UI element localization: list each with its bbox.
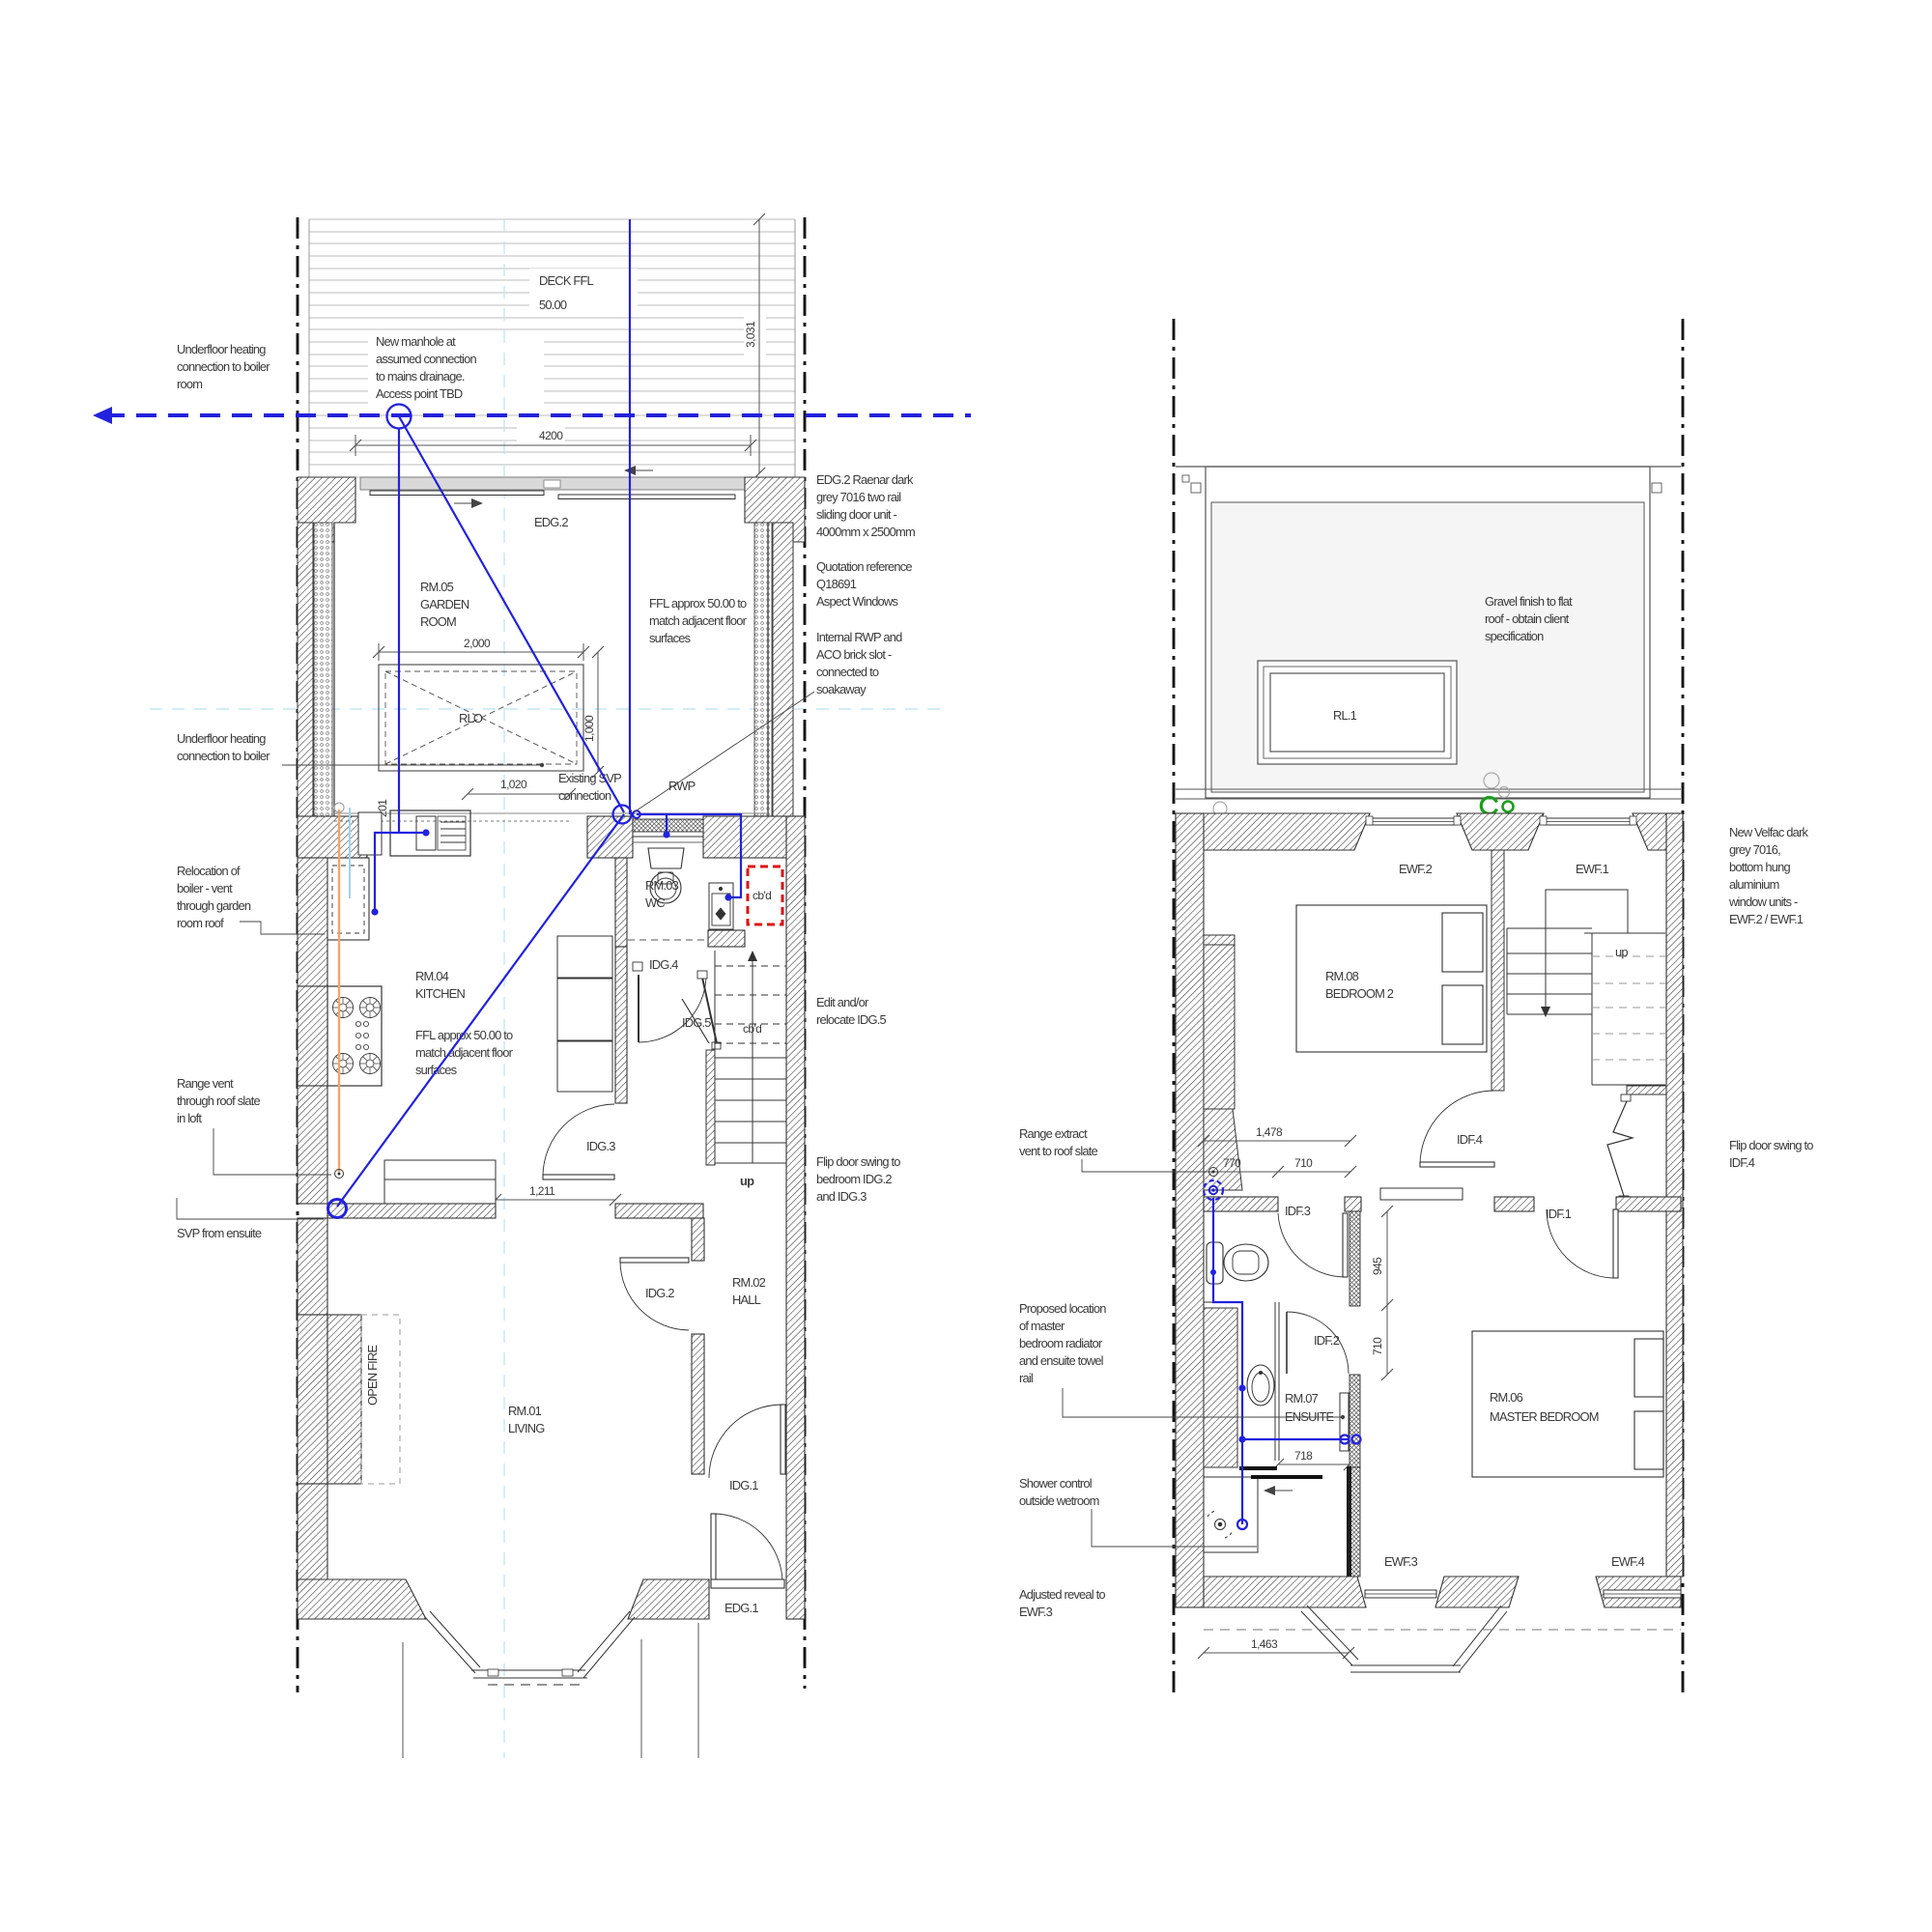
svg-text:RM.07: RM.07 bbox=[1285, 1391, 1319, 1406]
svg-text:IDG.1: IDG.1 bbox=[729, 1478, 758, 1492]
svg-text:RLO: RLO bbox=[459, 711, 483, 725]
svg-text:EWF.3: EWF.3 bbox=[1384, 1554, 1418, 1569]
svg-text:Shower control: Shower control bbox=[1019, 1476, 1092, 1491]
svg-text:and ensuite towel: and ensuite towel bbox=[1019, 1353, 1103, 1368]
svg-text:cb'd: cb'd bbox=[753, 889, 771, 902]
svg-text:bedroom IDG.2: bedroom IDG.2 bbox=[816, 1172, 892, 1186]
svg-text:EDG.1: EDG.1 bbox=[724, 1601, 758, 1615]
svg-text:RM.01: RM.01 bbox=[508, 1404, 542, 1418]
svg-text:IDF.4: IDF.4 bbox=[1457, 1132, 1483, 1147]
svg-text:New manhole at: New manhole at bbox=[376, 334, 456, 349]
svg-text:SVP from ensuite: SVP from ensuite bbox=[177, 1226, 262, 1240]
svg-text:to mains drainage.: to mains drainage. bbox=[376, 369, 465, 384]
svg-text:MASTER BEDROOM: MASTER BEDROOM bbox=[1490, 1409, 1599, 1424]
svg-text:in loft: in loft bbox=[177, 1111, 202, 1125]
svg-text:ACO brick slot -: ACO brick slot - bbox=[816, 647, 892, 662]
svg-text:RM.02: RM.02 bbox=[732, 1275, 766, 1290]
svg-text:Existing SVP: Existing SVP bbox=[558, 771, 621, 785]
svg-text:Adjusted reveal to: Adjusted reveal to bbox=[1019, 1587, 1105, 1602]
svg-text:Aspect Windows: Aspect Windows bbox=[816, 594, 897, 609]
svg-text:RM.06: RM.06 bbox=[1490, 1390, 1523, 1405]
svg-text:EDG.2 Raenar dark: EDG.2 Raenar dark bbox=[816, 472, 914, 487]
svg-text:ENSUITE: ENSUITE bbox=[1285, 1409, 1334, 1424]
svg-text:LIVING: LIVING bbox=[508, 1421, 545, 1435]
svg-text:through garden: through garden bbox=[177, 898, 251, 913]
svg-text:surfaces: surfaces bbox=[649, 631, 691, 645]
svg-text:RM.04: RM.04 bbox=[415, 969, 449, 983]
svg-text:bottom hung: bottom hung bbox=[1729, 860, 1790, 874]
svg-text:of master: of master bbox=[1019, 1319, 1065, 1333]
svg-text:Range extract: Range extract bbox=[1019, 1126, 1088, 1141]
svg-text:GARDEN: GARDEN bbox=[420, 597, 469, 611]
svg-text:up: up bbox=[740, 1174, 754, 1188]
svg-text:710: 710 bbox=[1294, 1156, 1313, 1170]
svg-text:connection: connection bbox=[558, 788, 611, 803]
svg-text:aluminium: aluminium bbox=[1729, 877, 1779, 892]
svg-text:RWP: RWP bbox=[668, 779, 696, 793]
svg-text:up: up bbox=[1615, 945, 1628, 959]
svg-text:Underfloor heating: Underfloor heating bbox=[177, 731, 266, 746]
svg-text:room roof: room roof bbox=[177, 916, 224, 930]
svg-text:WC: WC bbox=[645, 895, 665, 910]
svg-text:FFL approx 50.00 to: FFL approx 50.00 to bbox=[415, 1028, 513, 1042]
svg-text:770: 770 bbox=[1223, 1156, 1241, 1170]
svg-text:Quotation reference: Quotation reference bbox=[816, 559, 912, 574]
svg-text:EWF.2 / EWF.1: EWF.2 / EWF.1 bbox=[1729, 912, 1804, 926]
svg-text:Underfloor heating: Underfloor heating bbox=[177, 342, 266, 356]
svg-text:Relocation of: Relocation of bbox=[177, 864, 241, 878]
svg-text:sliding door unit -: sliding door unit - bbox=[816, 507, 896, 522]
svg-text:vent to roof slate: vent to roof slate bbox=[1019, 1144, 1098, 1158]
svg-text:FFL approx 50.00 to: FFL approx 50.00 to bbox=[649, 596, 747, 611]
svg-text:HALL: HALL bbox=[732, 1293, 761, 1307]
svg-text:and IDG.3: and IDG.3 bbox=[816, 1189, 867, 1204]
svg-text:IDF.4: IDF.4 bbox=[1729, 1155, 1755, 1170]
svg-text:RL.1: RL.1 bbox=[1333, 708, 1357, 723]
svg-text:IDG.4: IDG.4 bbox=[649, 957, 678, 972]
svg-text:grey 7016,: grey 7016, bbox=[1729, 842, 1780, 857]
svg-text:connection to boiler: connection to boiler bbox=[177, 749, 270, 763]
svg-text:EWF.4: EWF.4 bbox=[1611, 1554, 1645, 1569]
svg-text:grey 7016 two rail: grey 7016 two rail bbox=[816, 490, 900, 504]
svg-text:50.00: 50.00 bbox=[539, 298, 567, 312]
svg-text:window units -: window units - bbox=[1728, 895, 1798, 909]
svg-text:IDF.2: IDF.2 bbox=[1314, 1333, 1340, 1348]
svg-text:IDF.1: IDF.1 bbox=[1546, 1207, 1572, 1221]
svg-text:IDG.3: IDG.3 bbox=[586, 1139, 615, 1153]
svg-text:4000mm x 2500mm: 4000mm x 2500mm bbox=[816, 525, 915, 539]
svg-text:roof - obtain client: roof - obtain client bbox=[1485, 611, 1570, 626]
svg-text:945: 945 bbox=[1371, 1257, 1384, 1275]
svg-text:boiler - vent: boiler - vent bbox=[177, 881, 233, 895]
svg-text:specification: specification bbox=[1485, 629, 1544, 643]
svg-text:match adjacent floor: match adjacent floor bbox=[649, 613, 748, 628]
svg-text:DECK FFL: DECK FFL bbox=[539, 273, 594, 288]
svg-text:ROOM: ROOM bbox=[420, 614, 456, 629]
svg-text:EDG.2: EDG.2 bbox=[534, 515, 568, 529]
svg-text:match adjacent floor: match adjacent floor bbox=[415, 1045, 514, 1060]
svg-text:outside wetroom: outside wetroom bbox=[1019, 1493, 1099, 1508]
svg-text:connected to: connected to bbox=[816, 665, 879, 679]
svg-text:bedroom radiator: bedroom radiator bbox=[1019, 1336, 1103, 1350]
svg-text:1,000: 1,000 bbox=[582, 715, 596, 742]
svg-text:IDG.5: IDG.5 bbox=[682, 1015, 711, 1030]
svg-text:EWF.2: EWF.2 bbox=[1399, 862, 1433, 876]
svg-text:Flip door swing to: Flip door swing to bbox=[816, 1154, 900, 1169]
svg-text:Range vent: Range vent bbox=[177, 1076, 234, 1091]
svg-text:connection to boiler: connection to boiler bbox=[177, 359, 270, 374]
svg-text:Q18691: Q18691 bbox=[816, 577, 857, 591]
svg-text:3,031: 3,031 bbox=[744, 321, 757, 348]
svg-text:New Velfac dark: New Velfac dark bbox=[1729, 825, 1808, 839]
svg-text:RM.08: RM.08 bbox=[1325, 969, 1359, 983]
svg-text:Internal RWP and: Internal RWP and bbox=[816, 630, 902, 644]
svg-text:1,463: 1,463 bbox=[1251, 1637, 1278, 1651]
svg-text:Flip door swing to: Flip door swing to bbox=[1729, 1138, 1813, 1152]
svg-text:KITCHEN: KITCHEN bbox=[415, 986, 465, 1001]
svg-text:IDG.2: IDG.2 bbox=[645, 1286, 674, 1300]
svg-text:Edit and/or: Edit and/or bbox=[816, 995, 869, 1009]
svg-text:OPEN FIRE: OPEN FIRE bbox=[365, 1345, 380, 1406]
svg-text:BEDROOM 2: BEDROOM 2 bbox=[1325, 986, 1394, 1001]
svg-text:Gravel finish to flat: Gravel finish to flat bbox=[1485, 594, 1573, 609]
svg-text:1,211: 1,211 bbox=[529, 1184, 555, 1198]
svg-text:through roof slate: through roof slate bbox=[177, 1094, 261, 1108]
svg-text:1,478: 1,478 bbox=[1256, 1125, 1283, 1139]
svg-text:4200: 4200 bbox=[539, 429, 563, 442]
svg-text:EWF.1: EWF.1 bbox=[1576, 862, 1609, 876]
svg-text:1,020: 1,020 bbox=[500, 778, 527, 791]
svg-text:rail: rail bbox=[1019, 1371, 1033, 1385]
svg-text:2,000: 2,000 bbox=[464, 637, 491, 650]
svg-text:soakaway: soakaway bbox=[816, 682, 867, 696]
svg-text:Access point TBD: Access point TBD bbox=[376, 386, 463, 401]
svg-text:IDF.3: IDF.3 bbox=[1285, 1204, 1311, 1218]
svg-text:Proposed location: Proposed location bbox=[1019, 1301, 1106, 1316]
svg-text:cb'd: cb'd bbox=[743, 1022, 761, 1036]
svg-text:assumed connection: assumed connection bbox=[376, 352, 476, 366]
svg-text:RM.03: RM.03 bbox=[645, 878, 679, 893]
svg-text:710: 710 bbox=[1371, 1337, 1384, 1355]
svg-text:718: 718 bbox=[1294, 1449, 1313, 1463]
svg-text:EWF.3: EWF.3 bbox=[1019, 1605, 1053, 1619]
svg-text:relocate IDG.5: relocate IDG.5 bbox=[816, 1012, 887, 1027]
svg-text:room: room bbox=[177, 377, 202, 391]
svg-text:RM.05: RM.05 bbox=[420, 580, 454, 594]
